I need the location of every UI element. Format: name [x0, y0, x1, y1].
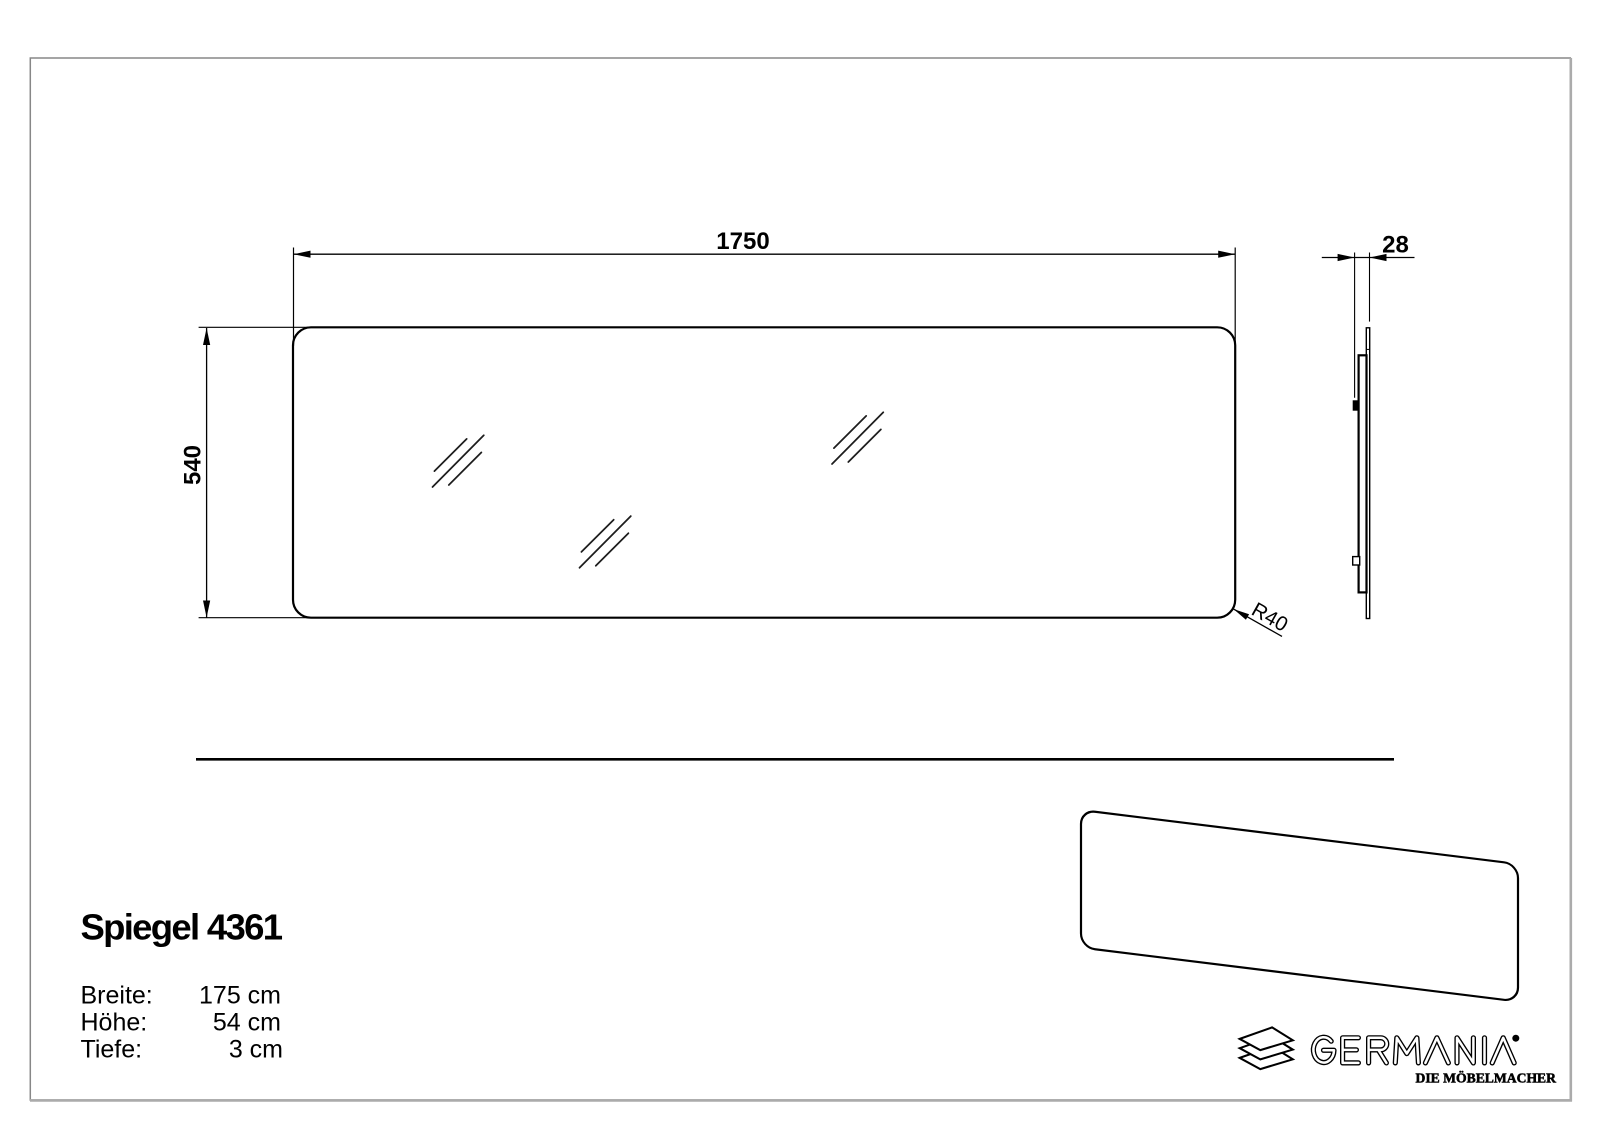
svg-text:3 cm: 3 cm	[229, 1036, 283, 1064]
svg-text:54 cm: 54 cm	[213, 1009, 281, 1037]
svg-text:Breite:: Breite:	[81, 981, 153, 1009]
svg-text:1750: 1750	[716, 228, 769, 255]
svg-text:28: 28	[1382, 232, 1409, 259]
svg-text:Spiegel 4361: Spiegel 4361	[81, 907, 284, 948]
svg-text:540: 540	[180, 445, 207, 485]
svg-text:Tiefe:: Tiefe:	[81, 1036, 143, 1064]
svg-text:175 cm: 175 cm	[199, 981, 281, 1009]
svg-text:DIE MÖBELMACHER: DIE MÖBELMACHER	[1416, 1070, 1558, 1086]
svg-text:Höhe:: Höhe:	[81, 1009, 148, 1037]
